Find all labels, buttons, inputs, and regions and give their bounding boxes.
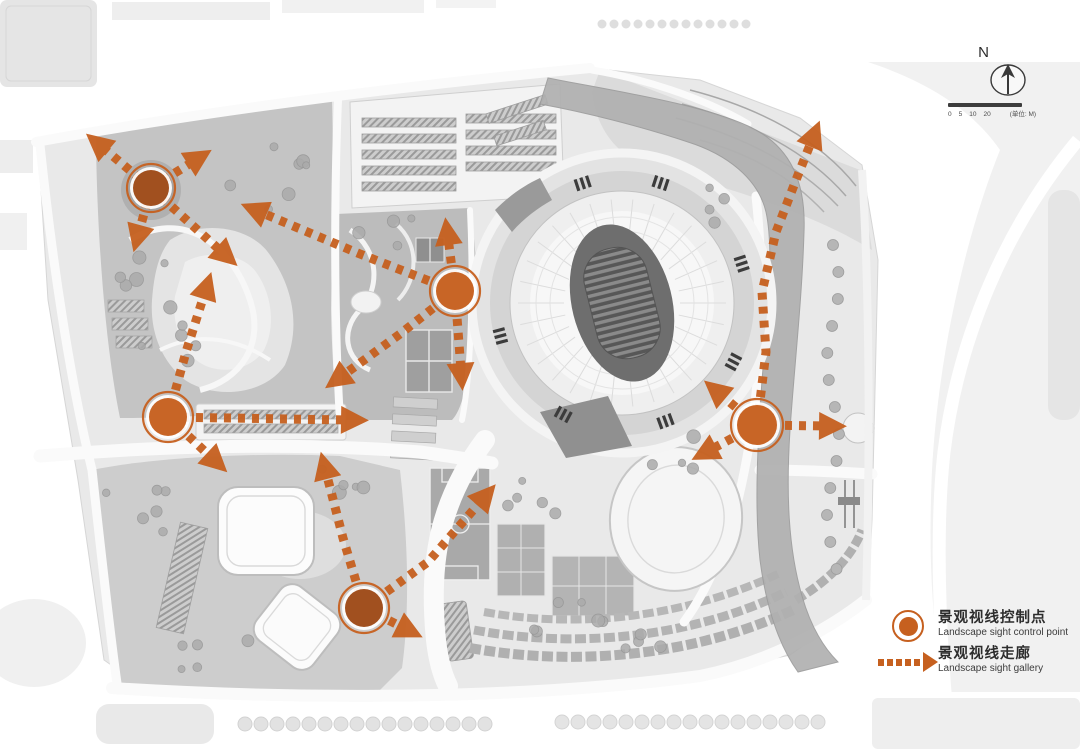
legend: 景观视线控制点 Landscape sight control point 景观… <box>878 610 1078 679</box>
legend-item-control-point: 景观视线控制点 Landscape sight control point <box>878 610 1078 642</box>
sight-control-point <box>339 583 389 633</box>
scale-tick: 10 <box>969 111 976 118</box>
legend-label-cn: 景观视线走廊 <box>938 646 1043 663</box>
north-label: N <box>948 44 1020 61</box>
scale-tick: 5 <box>959 111 963 118</box>
legend-item-sight-gallery: 景观视线走廊 Landscape sight gallery <box>878 646 1078 675</box>
scale-bar: 0 5 10 20 (单位: M) <box>948 103 1060 118</box>
legend-label-en: Landscape sight control point <box>938 627 1068 639</box>
compass: N 0 5 10 20 (单位: M) <box>948 44 1068 118</box>
sight-control-point <box>127 164 175 212</box>
sight-control-point <box>731 399 783 451</box>
sight-gallery-icon <box>878 652 938 672</box>
scale-tick: 0 <box>948 111 952 118</box>
central-garden <box>335 208 477 420</box>
sight-control-point <box>143 392 193 442</box>
scale-unit: (单位: M) <box>1010 108 1036 118</box>
legend-label-en: Landscape sight gallery <box>938 663 1043 675</box>
north-arrow-icon <box>972 61 1044 101</box>
masterplan-canvas: N 0 5 10 20 (单位: M) 景观视线控制点 Landscape si… <box>0 0 1080 749</box>
legend-label-cn: 景观视线控制点 <box>938 610 1068 627</box>
northwest-park <box>96 100 338 418</box>
sight-control-point <box>430 266 480 316</box>
control-point-icon <box>892 610 924 642</box>
scale-tick: 20 <box>983 111 990 118</box>
